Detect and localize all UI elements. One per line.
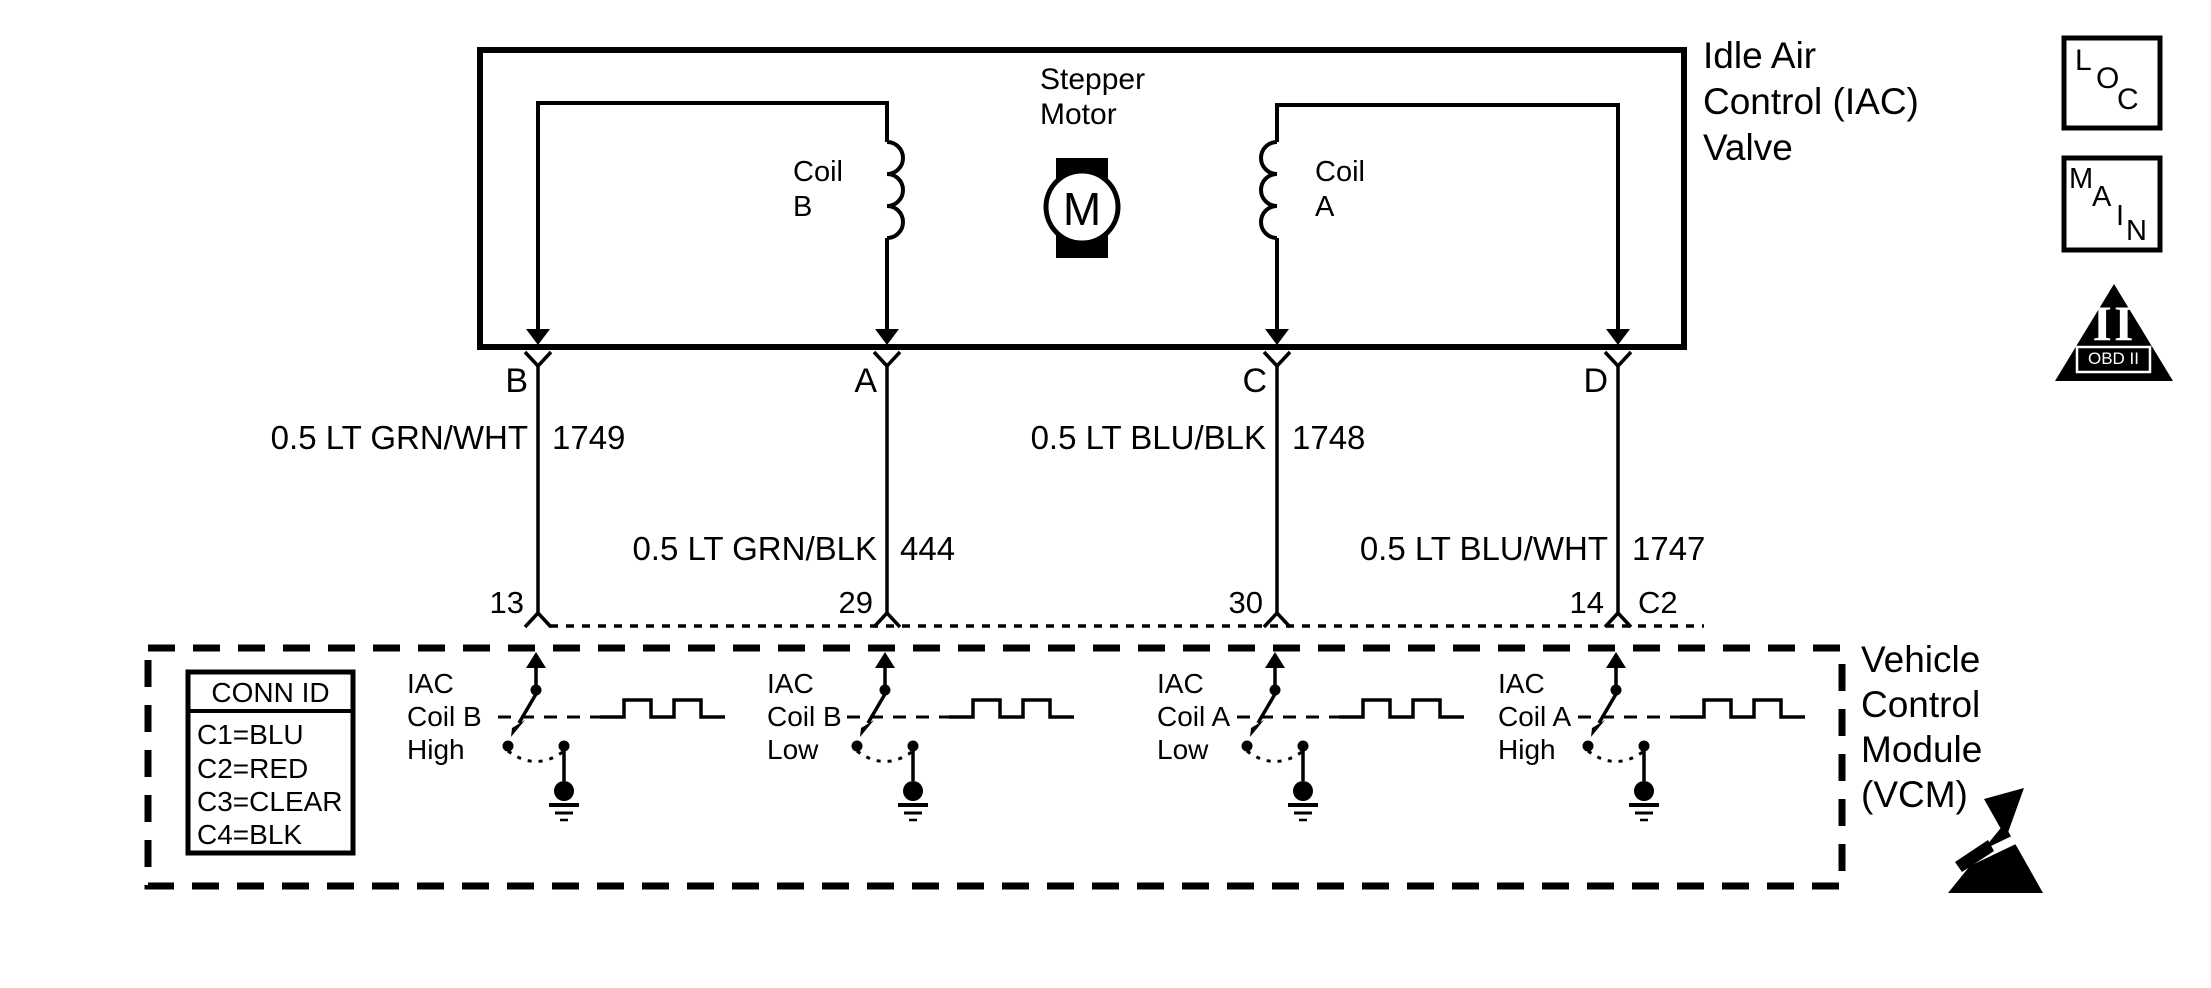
coil-a-label: Coil A <box>1315 155 1365 225</box>
conn-id-row-c4: C4=BLK <box>197 819 302 850</box>
vcm-title: Vehicle Control Module (VCM) <box>1861 637 1982 817</box>
driver-label-coil-b-low: IAC Coil B Low <box>767 667 842 766</box>
wire-c <box>1264 352 1290 627</box>
conn-id-header: CONN ID <box>188 677 353 708</box>
terminal-c-label: C <box>1187 362 1267 400</box>
coil-b-label: Coil B <box>793 155 843 225</box>
pin-29-label: 29 <box>783 586 873 621</box>
wire-b-circuit-number: 1749 <box>552 420 625 457</box>
motor-letter: M <box>1046 184 1118 236</box>
pin-30-label: 30 <box>1173 586 1263 621</box>
main-letter-a: A <box>2092 181 2111 213</box>
conn-id-row-c1: C1=BLU <box>197 719 304 750</box>
connector-c2-label: C2 <box>1638 586 1678 621</box>
driver-circuit-coil-a-low <box>1237 652 1464 820</box>
driver-label-coil-b-high: IAC Coil B High <box>407 667 482 766</box>
wire-a-color-label: 0.5 LT GRN/BLK <box>507 531 877 568</box>
wire-b <box>525 352 551 627</box>
main-letter-i: I <box>2116 200 2124 232</box>
main-letter-n: N <box>2126 215 2147 247</box>
conn-id-row-c3: C3=CLEAR <box>197 786 343 817</box>
conn-id-row-c2: C2=RED <box>197 753 308 784</box>
obd2-numeral: II <box>2076 295 2152 351</box>
wire-a-circuit-number: 444 <box>900 531 955 568</box>
driver-circuit-coil-b-low <box>847 652 1074 820</box>
loc-letter-c: C <box>2117 83 2139 117</box>
driver-label-coil-a-low: IAC Coil A Low <box>1157 667 1230 766</box>
wire-d <box>1605 352 1631 627</box>
wiring-diagram-page: Idle Air Control (IAC) Valve Stepper Mot… <box>0 0 2211 988</box>
terminal-b-label: B <box>448 362 528 400</box>
wire-a <box>874 352 900 627</box>
pin-13-label: 13 <box>434 586 524 621</box>
vcm-box <box>148 648 1842 886</box>
wire-d-circuit-number: 1747 <box>1632 531 1705 568</box>
wire-b-color-label: 0.5 LT GRN/WHT <box>158 420 528 457</box>
obd2-label: OBD II <box>2077 349 2150 368</box>
stepper-motor-label: Stepper Motor <box>1040 62 1145 132</box>
wire-c-circuit-number: 1748 <box>1292 420 1365 457</box>
driver-circuit-coil-b-high <box>498 652 725 820</box>
pin-14-label: 14 <box>1514 586 1604 621</box>
wire-c-color-label: 0.5 LT BLU/BLK <box>896 420 1266 457</box>
iac-valve-title: Idle Air Control (IAC) Valve <box>1703 33 1919 171</box>
coil-b-symbol <box>538 103 903 330</box>
loc-letter-l: L <box>2075 44 2092 78</box>
driver-label-coil-a-high: IAC Coil A High <box>1498 667 1571 766</box>
loc-letter-o: O <box>2096 62 2119 96</box>
main-letter-m: M <box>2069 163 2093 195</box>
driver-circuit-coil-a-high <box>1578 652 1805 820</box>
terminal-a-label: A <box>797 362 877 400</box>
wire-d-color-label: 0.5 LT BLU/WHT <box>1238 531 1608 568</box>
terminal-arrowheads <box>526 329 1630 345</box>
terminal-d-label: D <box>1528 362 1608 400</box>
